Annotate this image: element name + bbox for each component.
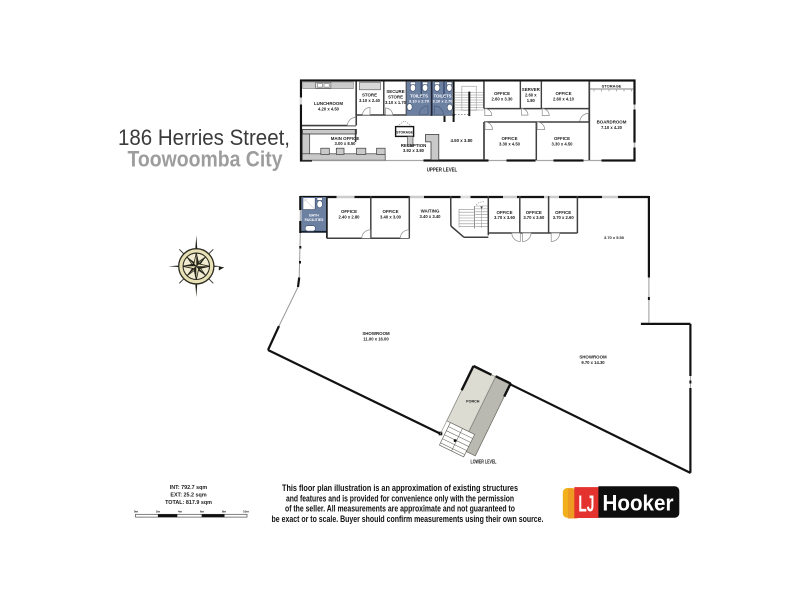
svg-text:LJ: LJ: [578, 490, 594, 516]
svg-text:WAITING: WAITING: [421, 208, 440, 213]
svg-text:Toowoomba City: Toowoomba City: [128, 147, 283, 172]
svg-text:EXT: 25.2 sqm: EXT: 25.2 sqm: [170, 493, 206, 499]
svg-text:SERVER: SERVER: [522, 87, 541, 92]
svg-text:INT: 792.7 sqm: INT: 792.7 sqm: [170, 485, 208, 491]
svg-text:4.20 x 4.50: 4.20 x 4.50: [318, 107, 340, 112]
svg-text:3.70 x 2.60: 3.70 x 2.60: [553, 215, 575, 220]
svg-text:11.00 x 16.00: 11.00 x 16.00: [363, 336, 389, 341]
svg-text:TOTAL: 817.9 sqm: TOTAL: 817.9 sqm: [165, 500, 212, 506]
svg-text:3.00 x 8.50: 3.00 x 8.50: [335, 141, 357, 146]
svg-text:4.50 x 3.80: 4.50 x 3.80: [451, 138, 474, 143]
svg-text:3.30 x 4.50: 3.30 x 4.50: [552, 142, 574, 147]
svg-text:BATH: BATH: [309, 213, 319, 217]
svg-text:STORE: STORE: [362, 93, 377, 98]
svg-text:2.60 x 3.30: 2.60 x 3.30: [492, 97, 514, 102]
svg-text:3.10 x 2.40: 3.10 x 2.40: [359, 98, 381, 103]
svg-text:UPPER LEVEL: UPPER LEVEL: [427, 167, 458, 173]
svg-text:OFFICE: OFFICE: [494, 91, 510, 96]
svg-text:1.80: 1.80: [527, 98, 536, 103]
svg-text:3.40 x 3.00: 3.40 x 3.00: [380, 215, 402, 220]
svg-text:0m: 0m: [134, 510, 139, 514]
svg-text:STORAGE: STORAGE: [602, 84, 622, 89]
svg-text:3.92 x 3.80: 3.92 x 3.80: [403, 148, 425, 153]
svg-text:be exact or to scale. Buyer sh: be exact or to scale. Buyer should confi…: [272, 514, 544, 524]
svg-text:6m: 6m: [200, 510, 205, 514]
svg-text:3.40 x 3.40: 3.40 x 3.40: [420, 214, 442, 219]
svg-text:OFFICE: OFFICE: [554, 136, 570, 141]
svg-text:OFFICE: OFFICE: [382, 209, 398, 214]
svg-text:OFFICE: OFFICE: [526, 210, 542, 215]
svg-text:3.70 x 5.50: 3.70 x 5.50: [604, 235, 625, 240]
svg-text:Hooker: Hooker: [603, 490, 674, 515]
svg-text:OFFICE: OFFICE: [501, 136, 517, 141]
svg-text:OFFICE: OFFICE: [555, 210, 571, 215]
svg-text:3.70 x 3.60: 3.70 x 3.60: [523, 215, 545, 220]
svg-text:2.40 x 2.80: 2.40 x 2.80: [339, 215, 361, 220]
svg-text:OFFICE: OFFICE: [341, 209, 357, 214]
svg-text:3.70 x 3.60: 3.70 x 3.60: [494, 215, 516, 220]
svg-text:7.10 x 4.20: 7.10 x 4.20: [601, 125, 623, 130]
svg-text:SECURE: SECURE: [386, 89, 404, 94]
svg-text:of the seller. All measurement: of the seller. All measurements are appr…: [285, 504, 515, 514]
svg-text:3.10 x 2.70: 3.10 x 2.70: [432, 98, 453, 103]
svg-text:OFFICE: OFFICE: [496, 210, 512, 215]
svg-text:STORAGE: STORAGE: [396, 130, 413, 134]
svg-text:4m: 4m: [178, 510, 183, 514]
svg-text:9.70 x 14.30: 9.70 x 14.30: [581, 360, 605, 365]
svg-text:10m: 10m: [243, 510, 249, 514]
svg-text:2.60 x: 2.60 x: [525, 93, 537, 98]
svg-text:3.10 x 1.70: 3.10 x 1.70: [385, 100, 407, 105]
svg-text:BOARDROOM: BOARDROOM: [597, 120, 627, 125]
svg-text:LUNCHROOM: LUNCHROOM: [314, 101, 343, 106]
svg-text:PORCH: PORCH: [466, 399, 480, 403]
svg-text:LOWER LEVEL: LOWER LEVEL: [471, 460, 497, 466]
svg-text:STORE: STORE: [388, 95, 403, 100]
svg-text:FACILITIES: FACILITIES: [305, 218, 325, 222]
svg-text:2.60 x 4.10: 2.60 x 4.10: [553, 97, 575, 102]
svg-text:3.30 x 4.50: 3.30 x 4.50: [499, 142, 521, 147]
svg-text:and features and is provided f: and features and is provided for conveni…: [286, 493, 514, 503]
svg-text:2m: 2m: [156, 510, 161, 514]
svg-text:This floor plan illustration i: This floor plan illustration is an appro…: [282, 483, 518, 493]
svg-text:OFFICE: OFFICE: [555, 91, 571, 96]
svg-text:3.10 x 2.70: 3.10 x 2.70: [409, 98, 430, 103]
svg-text:8m: 8m: [222, 510, 227, 514]
